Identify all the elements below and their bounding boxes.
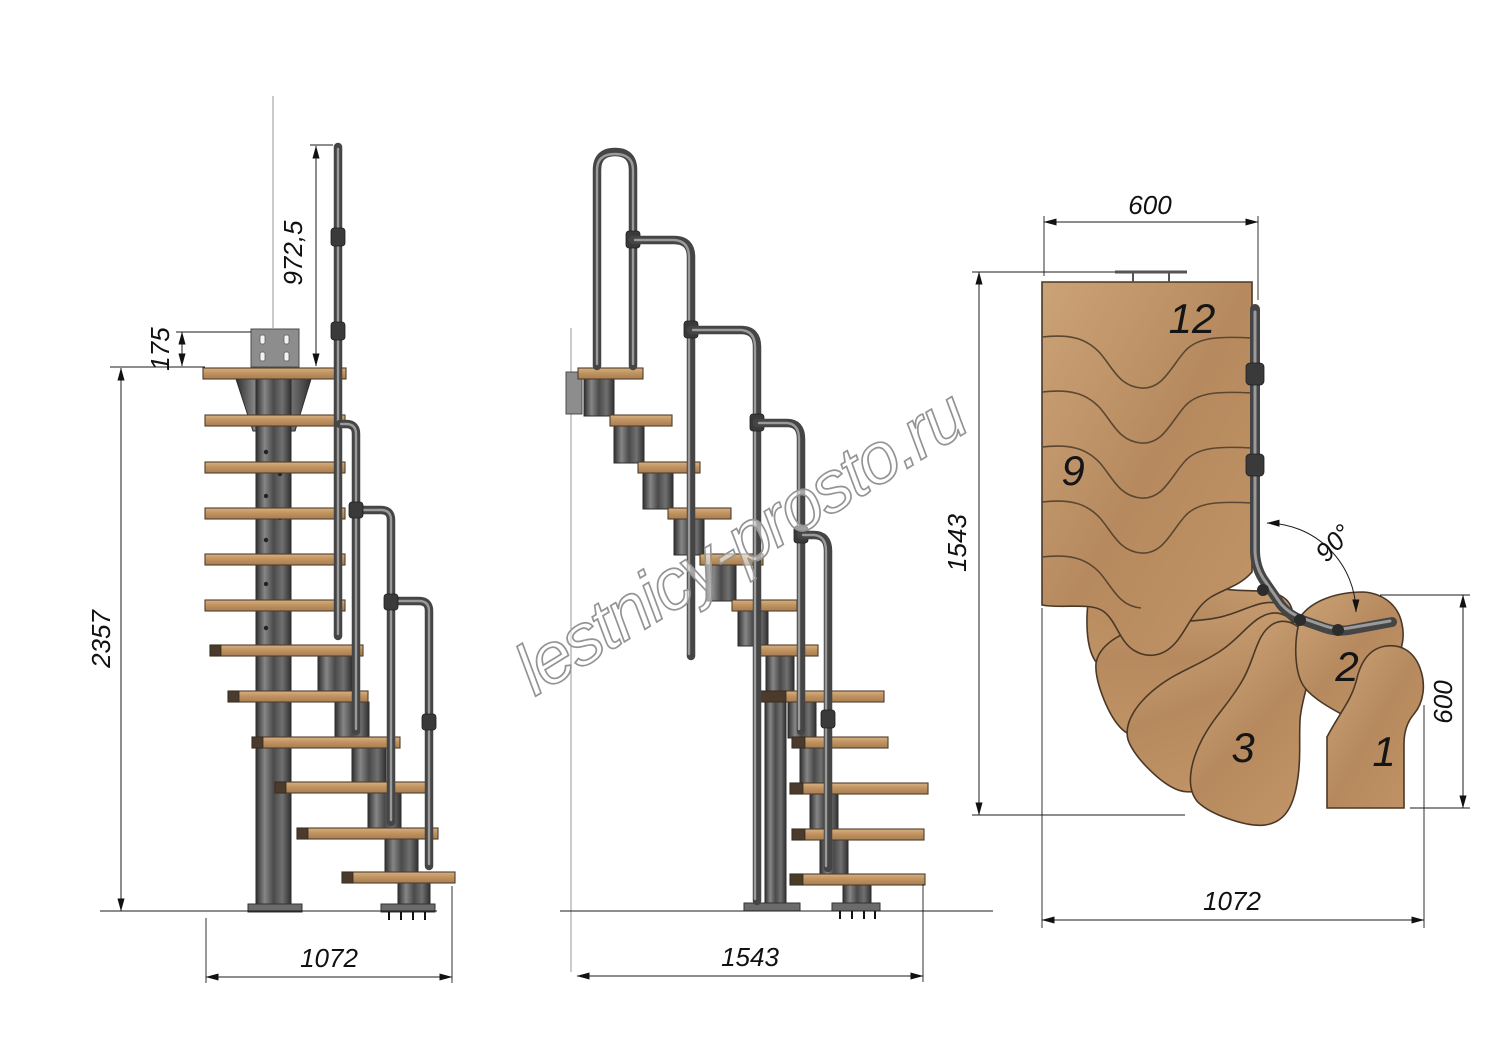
- base-plate: [744, 903, 800, 911]
- dim-base-depth-label: 1072: [300, 943, 358, 973]
- dim-flight-width-label: 600: [1128, 190, 1172, 220]
- step-number-2: 2: [1334, 643, 1358, 690]
- side-view: 2357 175 972,5 1072: [86, 96, 455, 983]
- side-steps: [203, 368, 455, 883]
- step-number-9: 9: [1061, 447, 1084, 494]
- step-number-1: 1: [1372, 728, 1395, 775]
- support-column: [765, 700, 786, 904]
- main-column: [256, 379, 291, 906]
- step-number-3: 3: [1231, 724, 1254, 771]
- dim-base-width-label: 1543: [721, 942, 779, 972]
- plan-view: 12 9 3 2 1 600 1543 600 1072 90°: [942, 190, 1470, 928]
- dim-bracket-offset-label: 175: [145, 327, 175, 371]
- dim-total-height-label: 2357: [86, 609, 116, 669]
- watermark-text: lestnicy-prosto.ru: [501, 374, 980, 710]
- dim-overall-depth-label: 1543: [942, 514, 972, 572]
- dim-overall-width-label: 1072: [1203, 886, 1261, 916]
- staircase-technical-drawing: 2357 175 972,5 1072: [0, 0, 1500, 1061]
- dim-turn-angle-label: 90°: [1309, 518, 1358, 567]
- step-number-12: 12: [1169, 295, 1216, 342]
- dim-entry-depth-label: 600: [1428, 680, 1458, 724]
- plan-wall-bracket: [1115, 272, 1187, 282]
- plan-handrail: [1246, 309, 1392, 636]
- top-mount-plate: [251, 329, 299, 367]
- anchor-bolts: [389, 912, 425, 920]
- base-plate: [832, 903, 880, 911]
- anchor-bolts: [840, 911, 875, 919]
- dim-handrail-height-label: 972,5: [278, 220, 308, 286]
